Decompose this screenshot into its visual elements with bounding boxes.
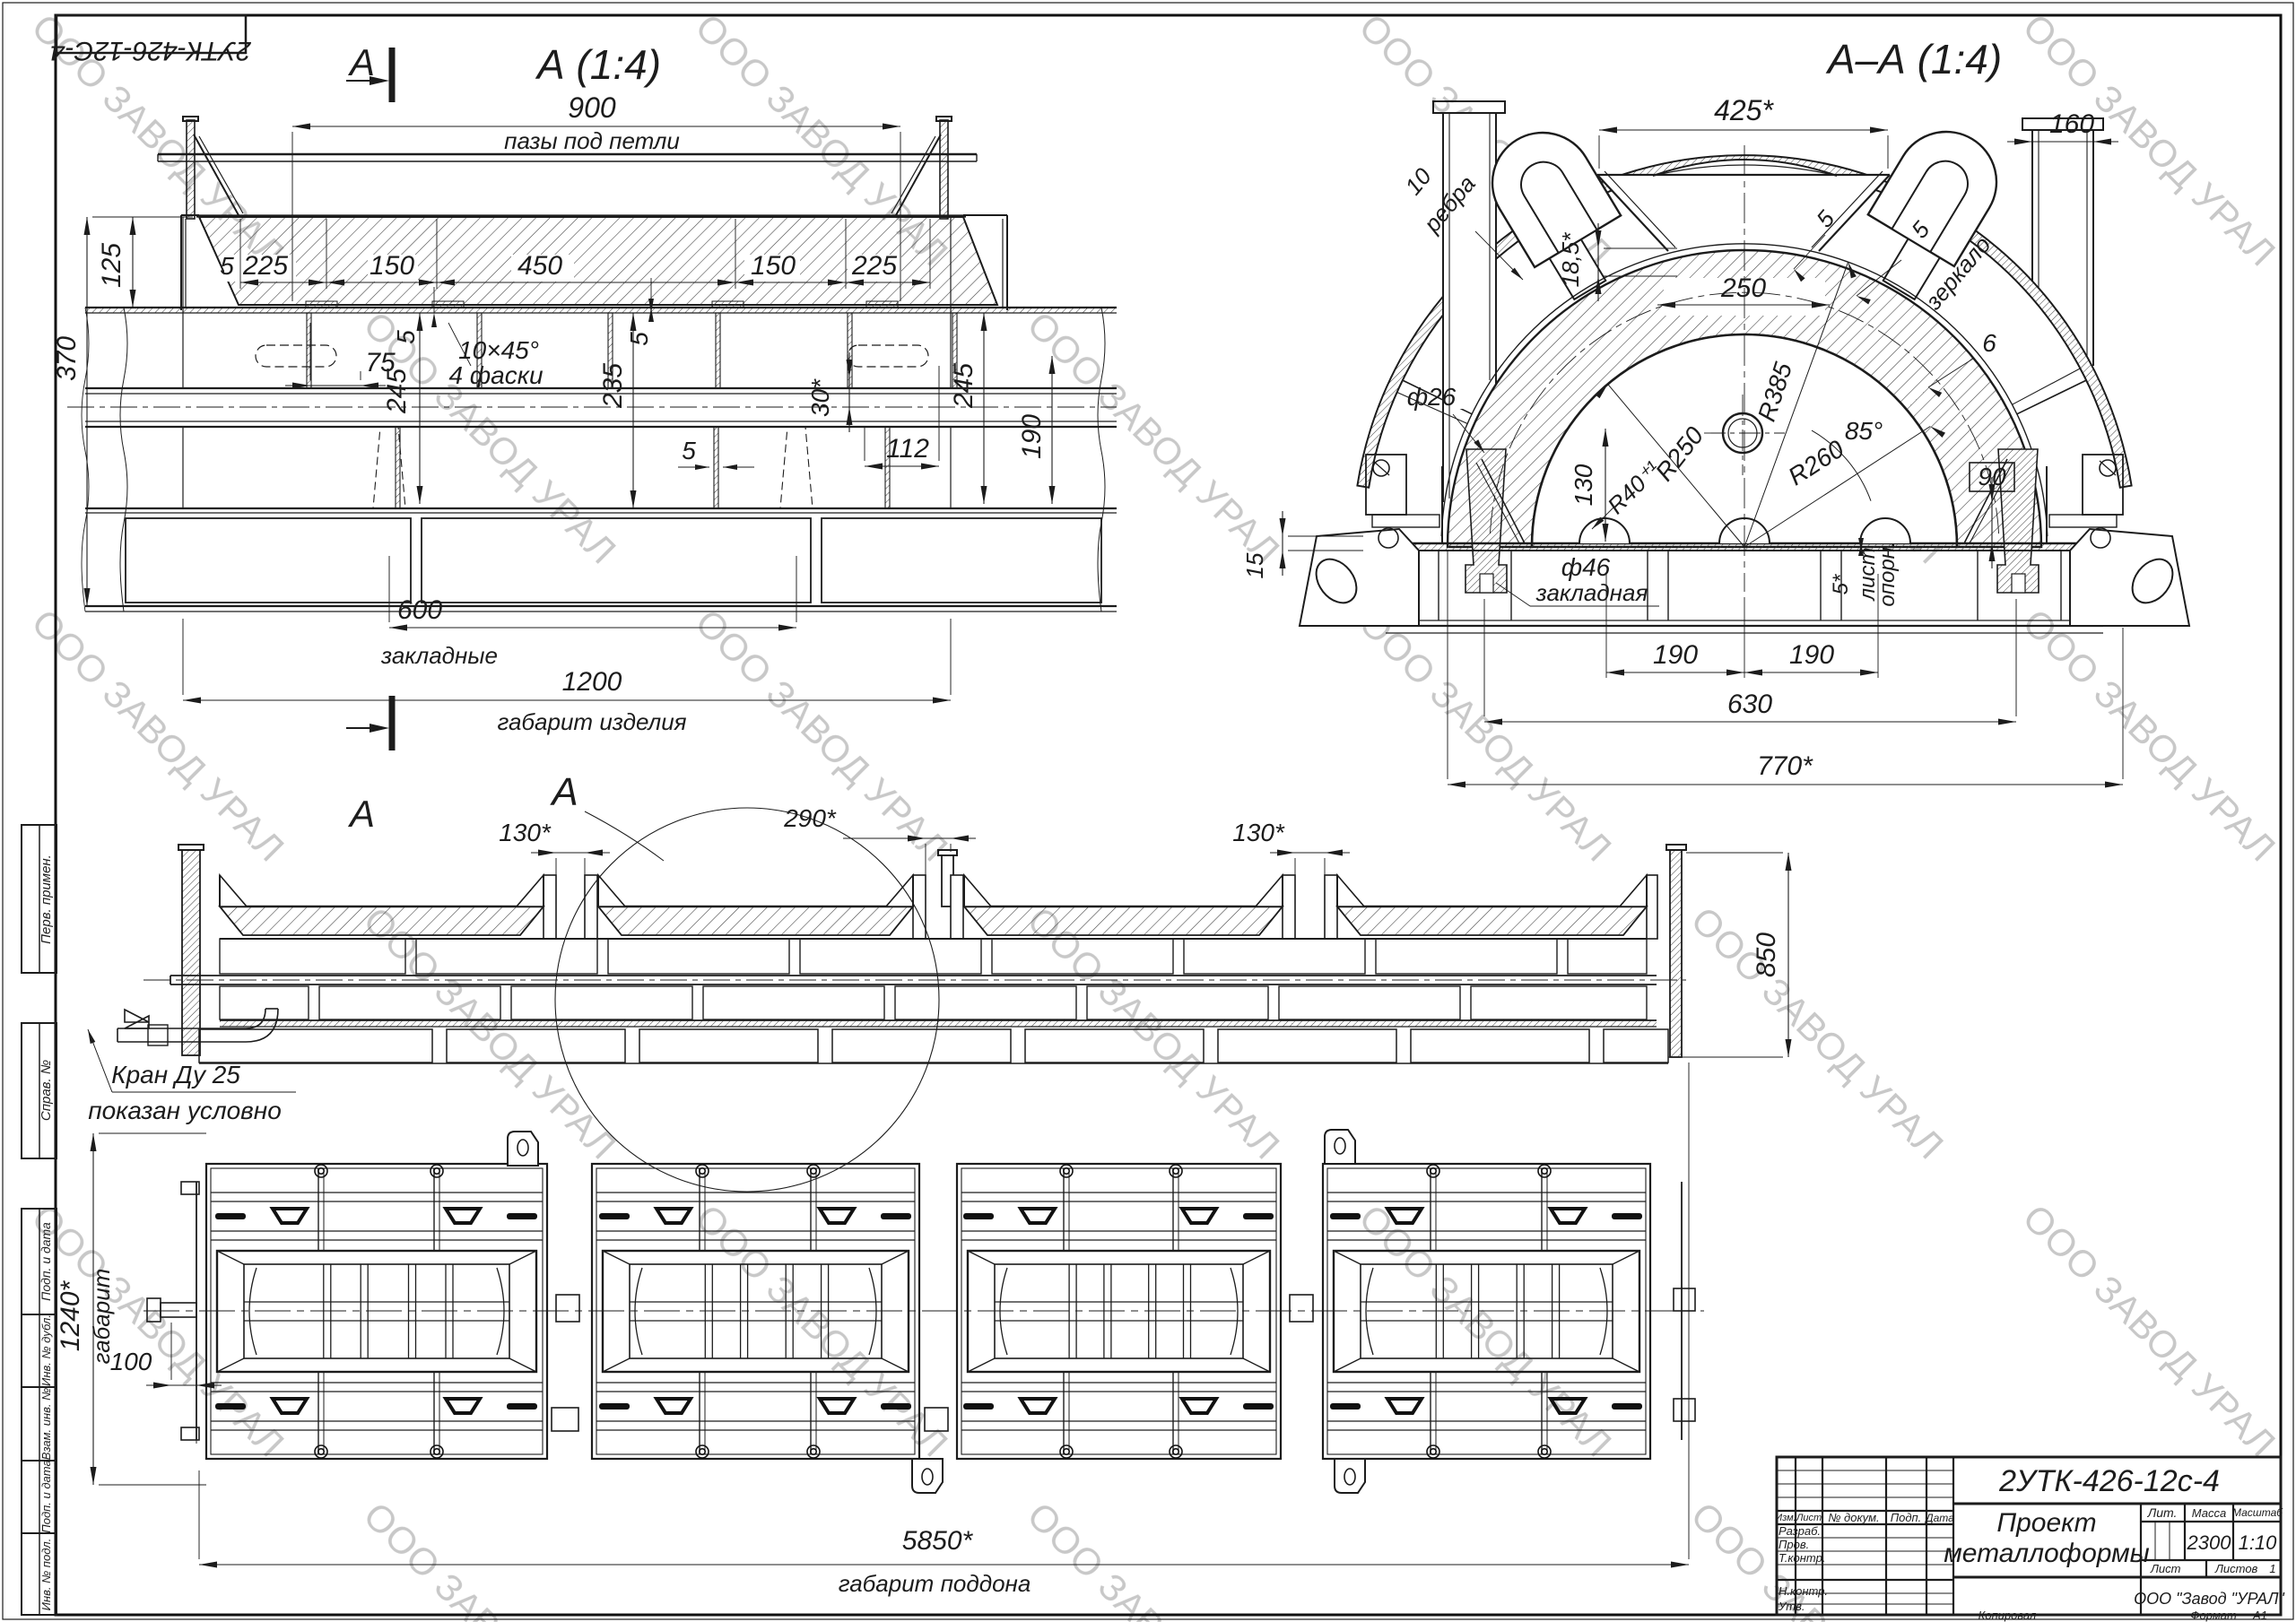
- svg-text:370: 370: [52, 336, 82, 381]
- svg-text:Подп. и дата: Подп. и дата: [39, 1222, 53, 1301]
- svg-text:габарит поддона: габарит поддона: [839, 1570, 1031, 1597]
- svg-text:Перв. примен.: Перв. примен.: [39, 854, 54, 944]
- svg-text:А: А: [347, 793, 375, 835]
- svg-text:2УТК-426-12С-4: 2УТК-426-12С-4: [50, 36, 252, 65]
- svg-text:А–А (1:4): А–А (1:4): [1825, 36, 2002, 82]
- svg-text:Справ. №: Справ. №: [39, 1060, 54, 1121]
- svg-text:225: 225: [242, 251, 288, 281]
- svg-text:190: 190: [1017, 414, 1047, 459]
- svg-text:5: 5: [682, 437, 696, 464]
- svg-text:пазы под петли: пазы под петли: [504, 127, 680, 154]
- svg-text:130: 130: [1570, 464, 1597, 506]
- svg-text:металлоформы: металлоформы: [1944, 1539, 2150, 1568]
- svg-text:ф46: ф46: [1561, 553, 1611, 581]
- svg-text:1200: 1200: [562, 667, 622, 697]
- svg-text:125: 125: [97, 243, 126, 288]
- svg-text:130*: 130*: [499, 819, 552, 846]
- svg-text:75: 75: [365, 348, 396, 377]
- svg-text:5*: 5*: [1829, 574, 1853, 594]
- svg-text:закладные: закладные: [380, 642, 498, 669]
- svg-text:10×45°: 10×45°: [458, 336, 539, 364]
- svg-text:Копировал: Копировал: [1979, 1609, 2037, 1622]
- svg-text:2УТК-426-12с-4: 2УТК-426-12с-4: [1998, 1464, 2220, 1498]
- svg-text:160: 160: [2049, 109, 2094, 139]
- svg-text:30*: 30*: [806, 378, 834, 417]
- svg-text:5: 5: [220, 252, 234, 280]
- svg-text:Взам. инв. №: Взам. инв. №: [39, 1388, 53, 1460]
- svg-text:235: 235: [598, 363, 628, 409]
- svg-text:1240*: 1240*: [56, 1279, 85, 1351]
- svg-text:4 фаски: 4 фаски: [448, 361, 544, 389]
- svg-text:Разраб.: Разраб.: [1779, 1524, 1821, 1538]
- svg-text:А: А: [549, 770, 578, 814]
- svg-text:1: 1: [2269, 1562, 2275, 1575]
- svg-text:Пров.: Пров.: [1779, 1538, 1809, 1551]
- svg-text:630: 630: [1727, 690, 1772, 719]
- svg-text:250: 250: [1720, 273, 1766, 303]
- svg-text:100: 100: [110, 1348, 152, 1375]
- svg-text:Кран Ду 25: Кран Ду 25: [111, 1061, 240, 1089]
- svg-text:190: 190: [1789, 640, 1834, 670]
- svg-text:290*: 290*: [783, 804, 837, 832]
- svg-text:Утв.: Утв.: [1778, 1600, 1805, 1613]
- svg-text:Лит.: Лит.: [2147, 1505, 2178, 1520]
- svg-text:425*: 425*: [1714, 94, 1774, 126]
- svg-text:5850*: 5850*: [902, 1526, 974, 1556]
- svg-text:Формат: Формат: [2190, 1609, 2237, 1622]
- svg-text:Лист: Лист: [1796, 1513, 1822, 1523]
- svg-text:5: 5: [625, 332, 653, 346]
- svg-text:190: 190: [1653, 640, 1698, 670]
- svg-text:Лист: Лист: [2150, 1562, 2181, 1575]
- svg-text:150: 150: [370, 251, 414, 281]
- svg-text:Листов: Листов: [2214, 1562, 2258, 1575]
- svg-text:850: 850: [1752, 932, 1781, 977]
- svg-text:А1: А1: [2252, 1609, 2267, 1622]
- svg-text:показан условно: показан условно: [88, 1097, 282, 1124]
- svg-text:А: А: [347, 41, 375, 83]
- svg-text:Масса: Масса: [2192, 1506, 2226, 1520]
- svg-text:18,5*: 18,5*: [1557, 232, 1584, 288]
- svg-text:6: 6: [1982, 329, 1996, 357]
- svg-text:Изм.: Изм.: [1775, 1513, 1796, 1523]
- svg-text:85°: 85°: [1845, 417, 1883, 445]
- svg-text:Подп.: Подп.: [1891, 1511, 1922, 1524]
- svg-text:Подп. и дата: Подп. и дата: [39, 1460, 53, 1532]
- svg-text:130*: 130*: [1232, 819, 1285, 846]
- svg-text:Дата: Дата: [1924, 1512, 1954, 1524]
- svg-text:Масштаб: Масштаб: [2232, 1506, 2283, 1519]
- svg-text:Проект: Проект: [1996, 1508, 2096, 1538]
- svg-text:450: 450: [517, 251, 562, 281]
- svg-text:ф26: ф26: [1407, 383, 1457, 411]
- svg-text:15: 15: [1241, 552, 1268, 578]
- svg-text:опорн.: опорн.: [1875, 541, 1900, 606]
- svg-text:150: 150: [751, 251, 796, 281]
- svg-text:225: 225: [851, 251, 897, 281]
- svg-text:900: 900: [568, 91, 616, 124]
- svg-text:245: 245: [949, 363, 978, 409]
- svg-text:№ докум.: № докум.: [1828, 1511, 1879, 1524]
- svg-text:1:10: 1:10: [2239, 1531, 2278, 1554]
- svg-text:Т.контр.: Т.контр.: [1779, 1551, 1825, 1565]
- svg-text:2300: 2300: [2187, 1531, 2232, 1554]
- svg-text:Инв. № подл.: Инв. № подл.: [39, 1539, 53, 1611]
- svg-text:закладная: закладная: [1535, 579, 1648, 606]
- svg-text:600: 600: [397, 595, 442, 625]
- svg-text:770*: 770*: [1757, 751, 1813, 781]
- svg-text:габарит изделия: габарит изделия: [497, 708, 686, 735]
- svg-text:112: 112: [886, 434, 929, 464]
- svg-text:А (1:4): А (1:4): [535, 41, 661, 88]
- svg-text:ООО "Завод "УРАЛ": ООО "Завод "УРАЛ": [2134, 1590, 2285, 1608]
- svg-text:Инв. № дубл.: Инв. № дубл.: [39, 1314, 53, 1386]
- svg-text:5: 5: [392, 330, 420, 344]
- svg-text:Н.контр.: Н.контр.: [1779, 1584, 1828, 1598]
